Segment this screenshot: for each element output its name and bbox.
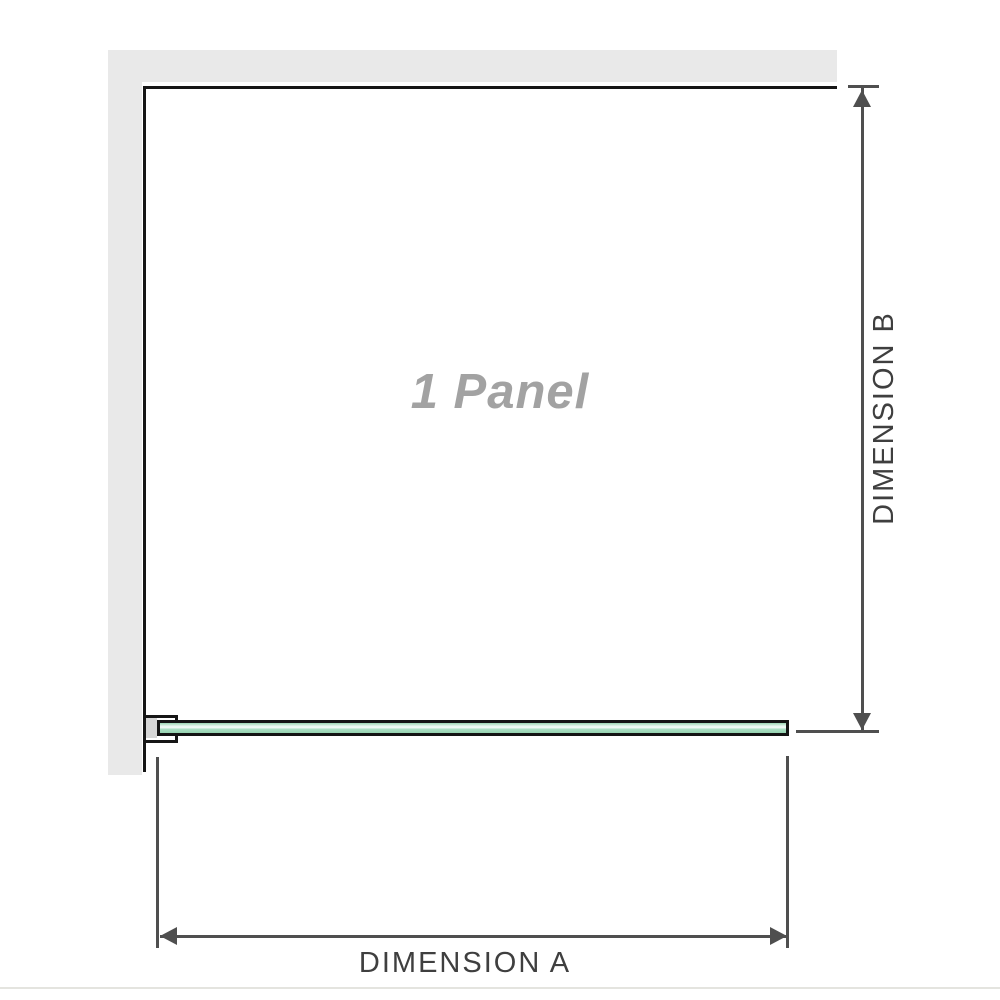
wall-top xyxy=(108,50,837,82)
dimension-b-line xyxy=(861,87,864,732)
dimension-a-extension-left xyxy=(156,757,159,948)
arrow-up-icon xyxy=(853,90,871,107)
panel-outline-left xyxy=(143,86,146,772)
arrow-down-icon xyxy=(853,713,871,730)
dimension-a-extension-right xyxy=(786,756,789,948)
wall-bracket-pad xyxy=(146,718,157,738)
arrow-left-icon xyxy=(160,927,177,945)
dimension-a-line xyxy=(160,935,787,938)
panel-outline-top xyxy=(143,86,837,89)
dimension-b-label: DIMENSION B xyxy=(868,288,900,548)
panel-count-label: 1 Panel xyxy=(348,368,652,417)
arrow-right-icon xyxy=(770,927,787,945)
glass-panel xyxy=(157,720,789,736)
shower-panel-diagram: 1 Panel DIMENSION B DIMENSION A xyxy=(0,0,1000,1000)
dimension-a-label: DIMENSION A xyxy=(315,949,615,978)
dimension-b-tick-bottom xyxy=(796,730,879,733)
wall-left xyxy=(108,50,142,775)
image-baseline-divider xyxy=(0,987,1000,989)
